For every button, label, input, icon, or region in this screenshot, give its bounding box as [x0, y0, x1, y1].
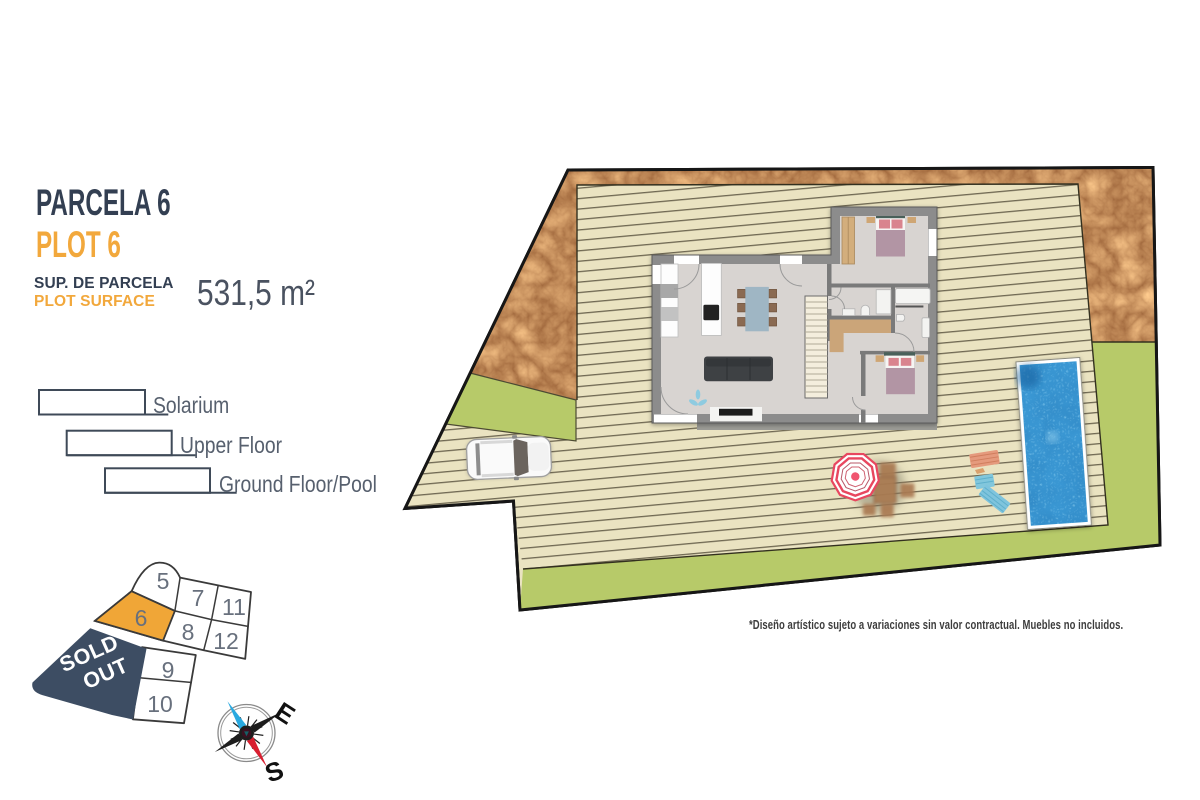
svg-text:8: 8: [182, 619, 195, 645]
svg-text:7: 7: [192, 585, 205, 611]
svg-text:6: 6: [135, 605, 148, 631]
svg-text:S: S: [261, 754, 288, 788]
svg-text:12: 12: [213, 628, 239, 654]
svg-text:10: 10: [147, 691, 173, 717]
svg-text:5: 5: [157, 568, 170, 594]
svg-text:9: 9: [162, 657, 175, 683]
svg-text:11: 11: [222, 594, 246, 620]
